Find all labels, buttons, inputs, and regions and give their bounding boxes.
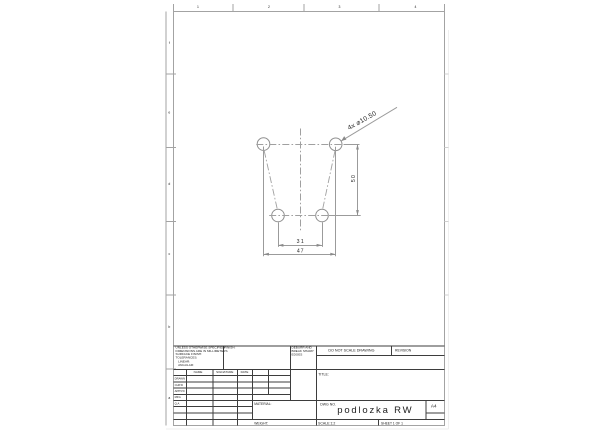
svg-text:e: e: [168, 111, 170, 115]
svg-text:d: d: [168, 182, 170, 186]
svg-text:f: f: [169, 41, 170, 45]
svg-text:podlozka RW: podlozka RW: [337, 405, 413, 416]
svg-text:2: 2: [268, 5, 270, 9]
svg-text:47: 47: [297, 249, 304, 255]
svg-text:REVISION: REVISION: [395, 348, 412, 352]
svg-text:50: 50: [351, 174, 357, 182]
svg-text:Q.A: Q.A: [175, 401, 180, 405]
svg-text:DO NOT SCALE DRAWING: DO NOT SCALE DRAWING: [328, 348, 374, 352]
svg-text:31: 31: [297, 239, 306, 245]
svg-text:MATERIAL:: MATERIAL:: [254, 402, 271, 406]
svg-text:SHEET 1 OF 1: SHEET 1 OF 1: [381, 421, 403, 425]
svg-text:DRAWN: DRAWN: [175, 377, 185, 381]
svg-text:c: c: [168, 252, 170, 256]
svg-text:3: 3: [339, 5, 341, 9]
svg-text:NAME: NAME: [194, 370, 203, 374]
svg-text:DATE: DATE: [241, 370, 249, 374]
svg-text:MFG: MFG: [175, 395, 181, 399]
svg-text:a: a: [168, 396, 170, 400]
svg-text:APPV'D: APPV'D: [175, 389, 185, 393]
svg-text:A4: A4: [431, 404, 437, 409]
svg-text:DWG NO.: DWG NO.: [320, 403, 336, 407]
svg-text:TITLE:: TITLE:: [318, 373, 329, 377]
svg-text:ANGULAR:: ANGULAR:: [178, 363, 194, 367]
svg-text:b: b: [168, 325, 170, 329]
svg-text:EDGES: EDGES: [292, 352, 303, 356]
svg-text:4: 4: [415, 5, 417, 9]
svg-text:WEIGHT:: WEIGHT:: [254, 421, 268, 425]
svg-text:SIGNATURE: SIGNATURE: [216, 370, 233, 374]
svg-text:SCALE:1:2: SCALE:1:2: [318, 421, 335, 425]
svg-text:1: 1: [197, 5, 199, 9]
svg-text:FINISH:: FINISH:: [224, 346, 235, 350]
svg-text:CHK'D: CHK'D: [175, 383, 183, 387]
